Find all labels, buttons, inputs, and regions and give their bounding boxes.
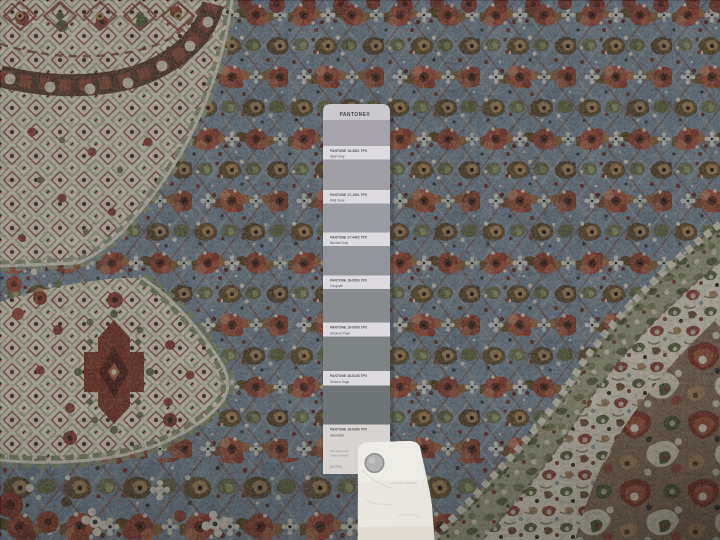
svg-text:PANTONE 18-0503 TPX: PANTONE 18-0503 TPX (330, 279, 368, 283)
svg-text:Gunmetal: Gunmetal (330, 433, 344, 437)
svg-text:PANTONE 17-4402 TPX: PANTONE 17-4402 TPX (330, 236, 368, 240)
svg-text:24 TPX: 24 TPX (330, 465, 343, 469)
svg-text:PANTONE 18-5105 TPX: PANTONE 18-5105 TPX (330, 374, 368, 378)
svg-text:PANTONE®: PANTONE® (340, 111, 371, 118)
svg-text:PANTONE 16-3801 TPX: PANTONE 16-3801 TPX (330, 149, 368, 153)
svg-text:PANTONE 18-0306 TPX: PANTONE 18-0306 TPX (330, 428, 368, 432)
svg-text:Colors of World: Colors of World (330, 454, 348, 458)
svg-text:Wild Dove: Wild Dove (330, 199, 345, 203)
svg-text:PANTONE 18-0000 TPX: PANTONE 18-0000 TPX (330, 326, 368, 330)
svg-text:+1 xx xxxxx 123 4567: +1 xx xxxxx 123 4567 (390, 481, 417, 485)
svg-text:Neutral Gray: Neutral Gray (330, 241, 348, 245)
svg-text:Opal Gray: Opal Gray (330, 155, 345, 159)
svg-text:Smoked Pearl: Smoked Pearl (330, 331, 350, 335)
svg-text:Fine tuned color: Fine tuned color (330, 449, 349, 453)
svg-text:Gargoyle: Gargoyle (330, 284, 343, 288)
svg-text:Sedona Sage: Sedona Sage (330, 380, 350, 384)
svg-text:PANTONE 17-1501 TPX: PANTONE 17-1501 TPX (330, 193, 368, 197)
